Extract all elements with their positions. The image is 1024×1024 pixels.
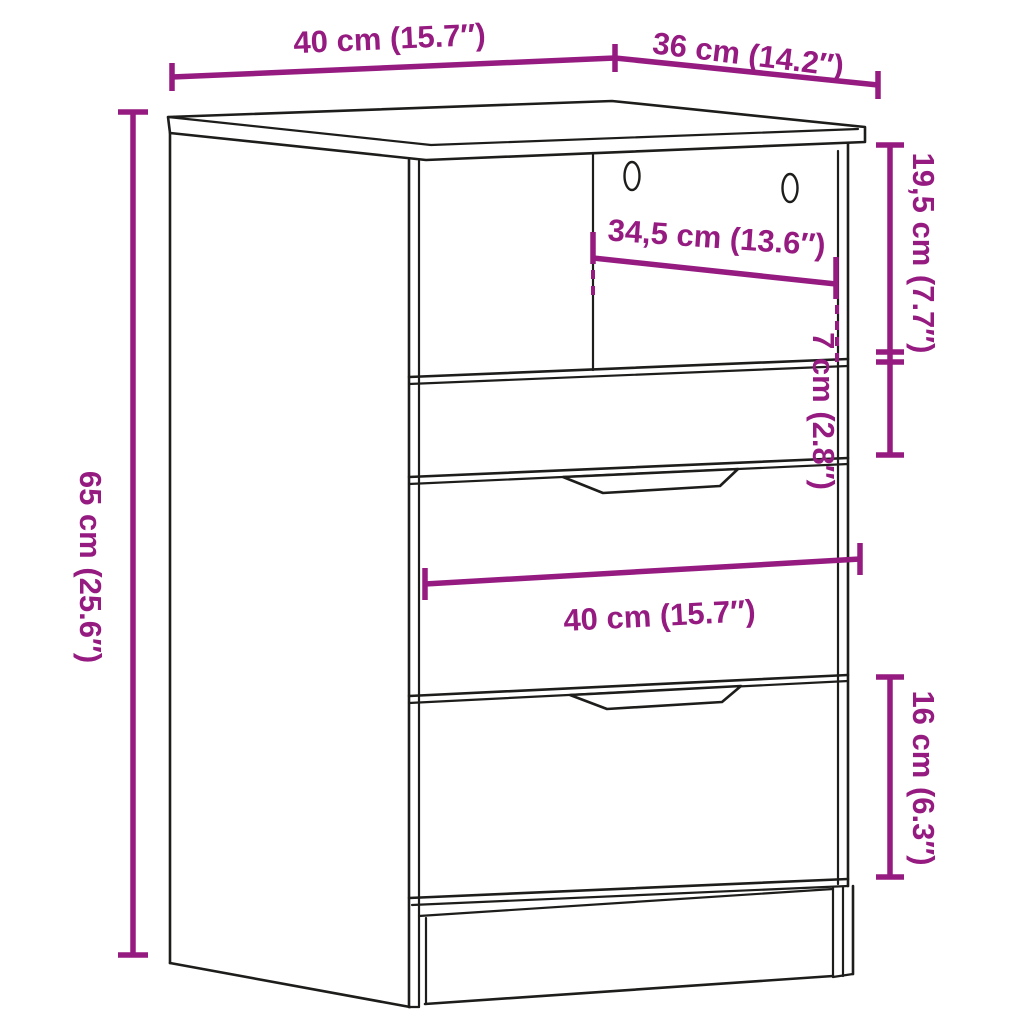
dimension-top-width: 40 cm (15.7″)	[172, 17, 615, 91]
dimension-small-drawer-label: 7 cm (2.8″)	[806, 332, 841, 490]
dimension-bottom-drawer: 16 cm (6.3″)	[876, 677, 941, 877]
dimension-line	[593, 258, 836, 284]
cabinet-top-panel	[168, 101, 865, 160]
middle-drawer-handle	[563, 469, 738, 493]
dimension-overall-height: 65 cm (25.6″)	[73, 112, 148, 955]
dimension-upper-right: 19,5 cm (7.7″) 7 cm (2.8″)	[806, 145, 941, 490]
dimension-inner-width: 34,5 cm (13.6″)	[593, 212, 837, 362]
dimension-top-depth: 36 cm (14.2″)	[615, 25, 878, 99]
back-panel-hole-left	[625, 162, 640, 190]
dimension-line	[172, 58, 615, 77]
dimension-line	[425, 559, 860, 584]
side-panel-bottom-edge	[170, 963, 410, 1007]
base-right-strip-bottom	[833, 974, 853, 977]
dimension-inner-width-label: 34,5 cm (13.6″)	[607, 212, 827, 262]
bottom-drawer-handle	[570, 686, 741, 709]
plinth-bottom-edge	[425, 976, 833, 1004]
dimension-front-width-label: 40 cm (15.7″)	[562, 593, 756, 638]
furniture-dimension-diagram: 40 cm (15.7″) 36 cm (14.2″) 34,5 cm (13.…	[0, 0, 1024, 1024]
dimension-top-width-label: 40 cm (15.7″)	[293, 17, 487, 60]
dimension-front-width: 40 cm (15.7″)	[425, 543, 860, 638]
dimension-upper-section-label: 19,5 cm (7.7″)	[906, 153, 941, 354]
dimension-overall-height-label: 65 cm (25.6″)	[73, 471, 108, 663]
dimension-bottom-drawer-label: 16 cm (6.3″)	[906, 690, 941, 865]
dimension-top-depth-label: 36 cm (14.2″)	[651, 25, 846, 83]
back-panel-hole-right	[783, 174, 798, 202]
cabinet-dimension-illustration: 40 cm (15.7″) 36 cm (14.2″) 34,5 cm (13.…	[0, 0, 1024, 1024]
